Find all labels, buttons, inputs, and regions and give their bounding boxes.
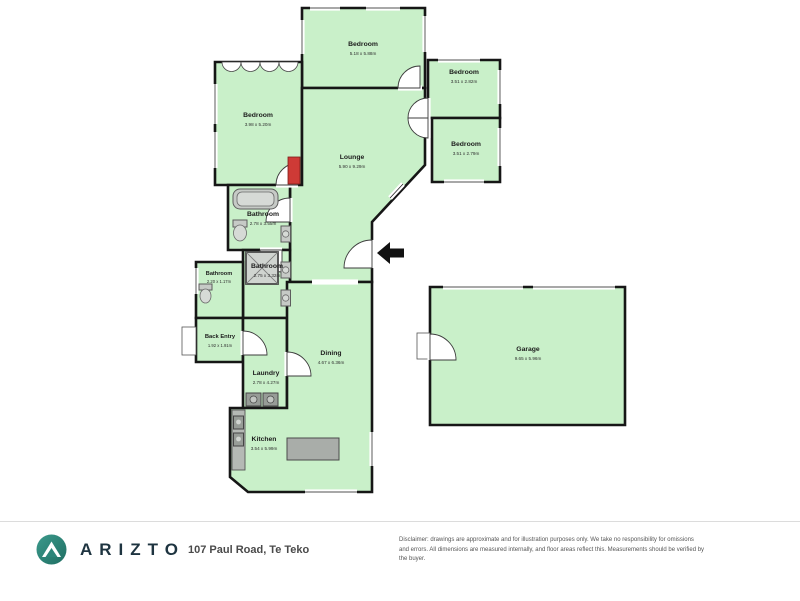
room-dims: 4.67 x 6.36m bbox=[318, 360, 345, 365]
property-address: 107 Paul Road, Te Teko bbox=[188, 544, 309, 556]
toilet bbox=[233, 220, 247, 241]
back-entry-porch bbox=[182, 327, 196, 355]
room-dims: 3.51 x 2.82m bbox=[451, 79, 478, 84]
disclaimer-line-2: All dimensions are measured internally, … bbox=[399, 547, 704, 563]
room-back-entry bbox=[196, 318, 243, 362]
room-name: Bathroom bbox=[247, 211, 279, 218]
room-name: Back Entry bbox=[205, 334, 236, 340]
toilet bbox=[199, 284, 212, 303]
entry-arrow-icon bbox=[377, 242, 404, 264]
arizto-mountain-icon bbox=[36, 534, 67, 565]
room-name: Kitchen bbox=[252, 436, 277, 443]
disclaimer-text: Disclaimer: drawings are approximate and… bbox=[399, 536, 705, 565]
floorplan-drawing: Bedroom 5.18 x 5.88m Bedroom 3.51 x 2.82… bbox=[0, 0, 800, 521]
room-name: Lounge bbox=[340, 154, 365, 161]
room-dims: 3.51 x 2.79m bbox=[453, 151, 480, 156]
room-name: Bedroom bbox=[451, 141, 481, 148]
room-dims: 3.54 x 5.99m bbox=[251, 446, 278, 451]
room-name: Bedroom bbox=[243, 112, 273, 119]
room-name: Garage bbox=[516, 346, 540, 353]
room-bedroom-right bbox=[432, 118, 500, 182]
vanity-basin bbox=[281, 290, 291, 306]
room-dims: 3.98 x 5.20m bbox=[245, 122, 272, 127]
room-dims: 9.65 x 5.96m bbox=[515, 356, 542, 361]
kitchen-island bbox=[287, 438, 339, 460]
floorplan-page: Bedroom 5.18 x 5.88m Bedroom 3.51 x 2.82… bbox=[0, 0, 800, 600]
room-name: Bedroom bbox=[449, 69, 479, 76]
room-name: Bathroom bbox=[206, 271, 232, 277]
kitchen-counter bbox=[232, 410, 245, 470]
room-name: Dining bbox=[320, 350, 341, 357]
brand-name: ARIZTO bbox=[80, 540, 185, 560]
fireplace-marker bbox=[288, 157, 300, 184]
room-name: Laundry bbox=[253, 370, 280, 377]
brand-logo: ARIZTO bbox=[36, 534, 185, 565]
room-dims: 2.78 x 3.55m bbox=[250, 221, 277, 226]
room-dims: 2.20 x 1.17m bbox=[207, 279, 232, 284]
room-dims: 2.75 x 3.32m bbox=[254, 273, 281, 278]
room-name: Bedroom bbox=[348, 41, 378, 48]
room-name: Bathroom bbox=[251, 263, 283, 270]
footer: ARIZTO 107 Paul Road, Te Teko Disclaimer… bbox=[0, 521, 800, 601]
room-dims: 5.90 x 9.29m bbox=[339, 164, 366, 169]
vanity-basin bbox=[281, 226, 291, 242]
room-dims: 1.92 x 1.91m bbox=[208, 343, 233, 348]
room-dims: 5.18 x 5.88m bbox=[350, 51, 377, 56]
room-dims: 2.78 x 4.27m bbox=[253, 380, 280, 385]
